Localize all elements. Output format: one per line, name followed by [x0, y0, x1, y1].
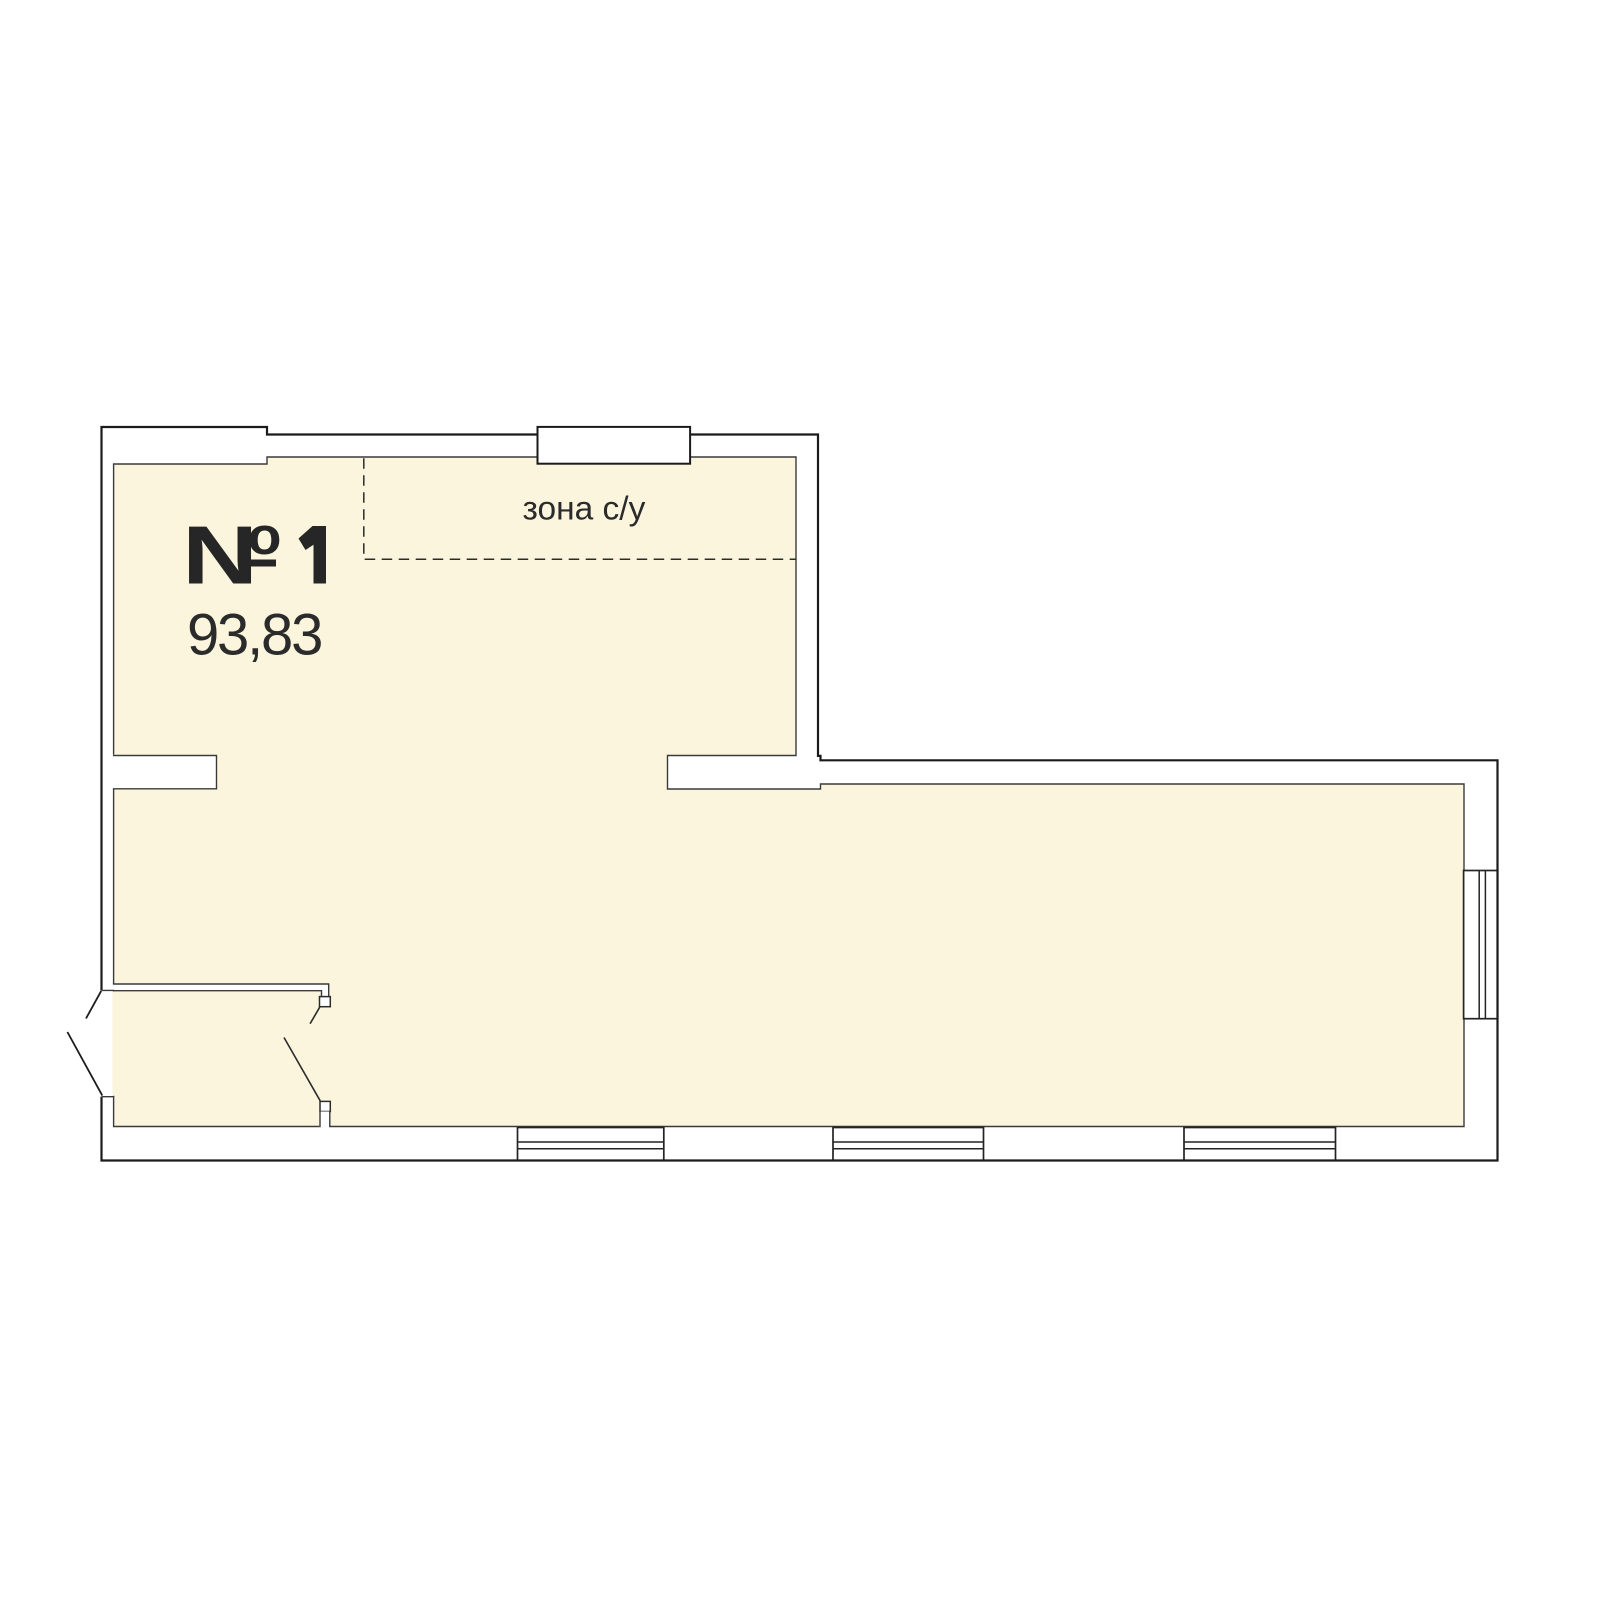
svg-text:зона с/у: зона с/у: [523, 490, 646, 527]
svg-text:o: o: [248, 506, 282, 565]
svg-text:93,83: 93,83: [187, 603, 321, 668]
